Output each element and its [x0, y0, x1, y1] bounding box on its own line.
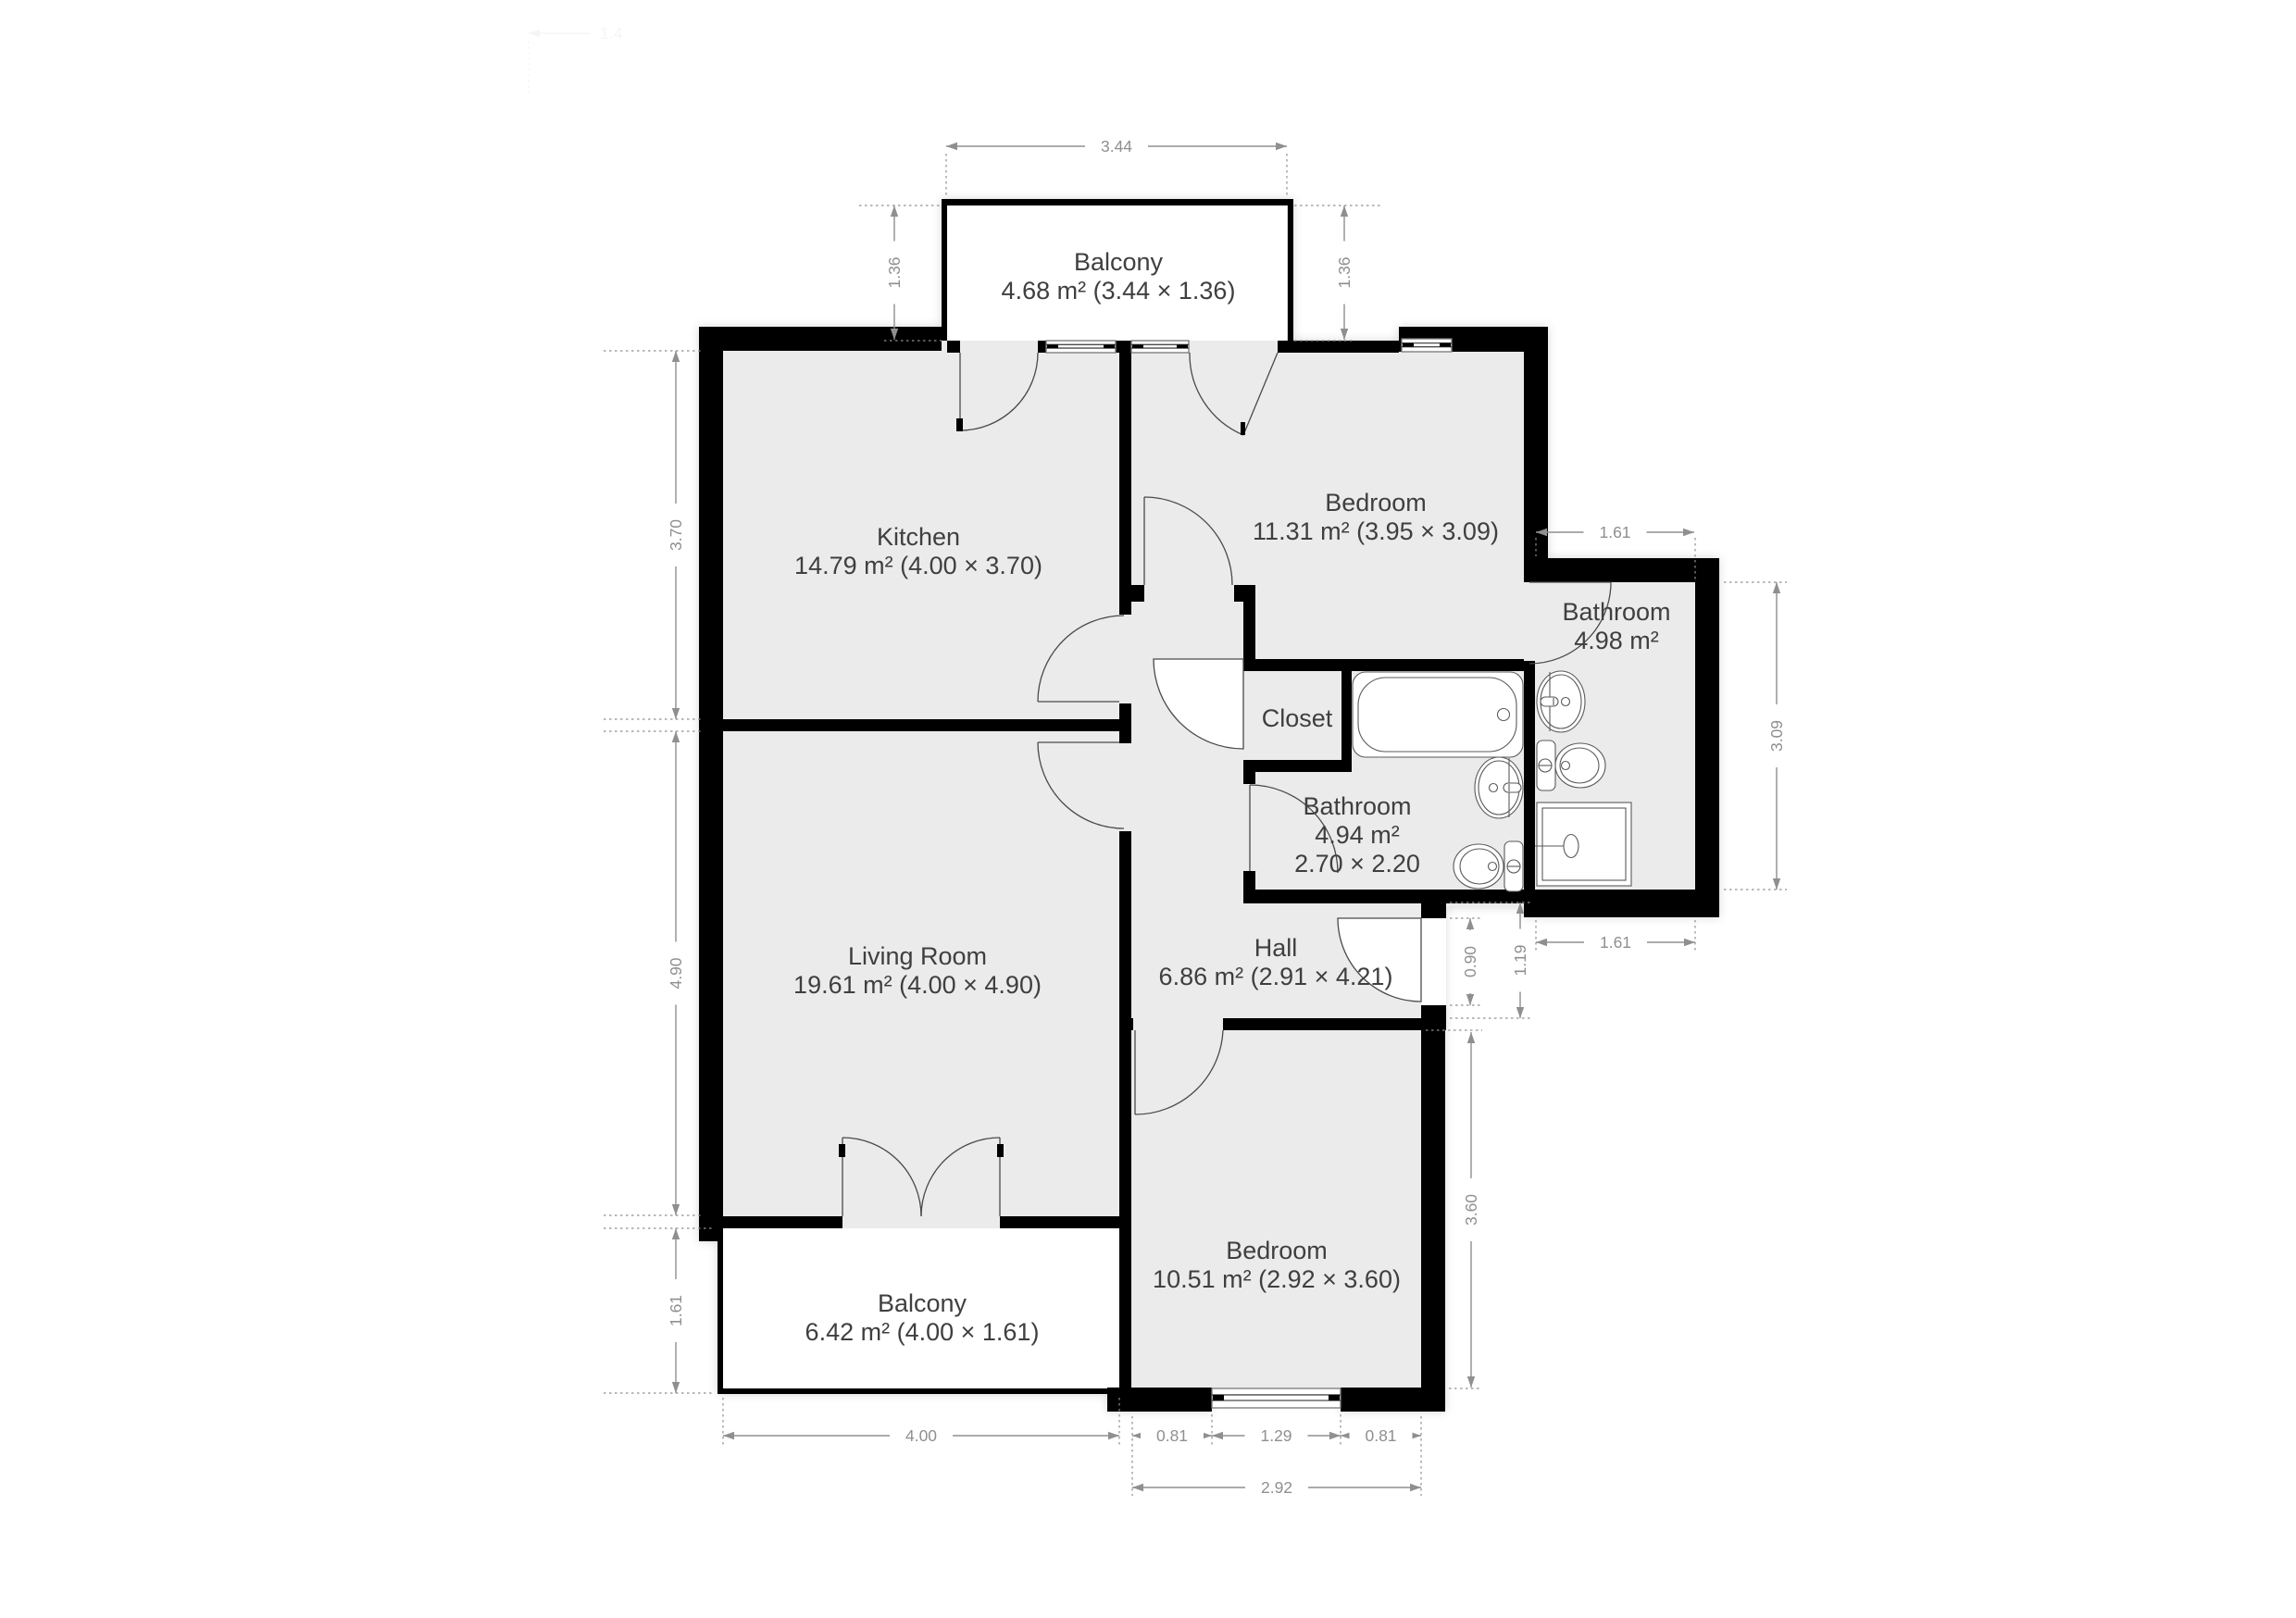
- svg-text:Bathroom: Bathroom: [1303, 792, 1411, 820]
- svg-text:1.61: 1.61: [1600, 933, 1631, 952]
- svg-text:2.70 × 2.20: 2.70 × 2.20: [1294, 850, 1420, 877]
- svg-text:3.70: 3.70: [667, 519, 685, 551]
- svg-text:11.31 m² (3.95 × 3.09): 11.31 m² (3.95 × 3.09): [1253, 517, 1499, 545]
- svg-text:3.09: 3.09: [1767, 720, 1786, 752]
- svg-text:Balcony: Balcony: [878, 1289, 967, 1317]
- svg-text:3.60: 3.60: [1462, 1194, 1480, 1226]
- svg-text:19.61 m² (4.00 × 4.90): 19.61 m² (4.00 × 4.90): [793, 971, 1042, 999]
- svg-text:3.44: 3.44: [1101, 137, 1132, 156]
- svg-text:1.61: 1.61: [1599, 523, 1630, 541]
- svg-text:1.4: 1.4: [600, 24, 623, 43]
- svg-text:6.42 m² (4.00 × 1.61): 6.42 m² (4.00 × 1.61): [805, 1318, 1040, 1346]
- svg-text:Closet: Closet: [1262, 704, 1333, 732]
- svg-text:1.36: 1.36: [885, 256, 904, 288]
- svg-text:4.90: 4.90: [667, 957, 685, 989]
- svg-text:1.36: 1.36: [1335, 256, 1354, 288]
- svg-text:14.79 m² (4.00 × 3.70): 14.79 m² (4.00 × 3.70): [794, 552, 1042, 579]
- svg-text:Living Room: Living Room: [848, 942, 987, 970]
- svg-text:0.81: 0.81: [1365, 1426, 1396, 1445]
- svg-text:1.19: 1.19: [1511, 944, 1529, 976]
- svg-text:4.98 m²: 4.98 m²: [1574, 627, 1659, 654]
- svg-text:4.94 m²: 4.94 m²: [1315, 821, 1400, 849]
- svg-text:1.61: 1.61: [667, 1295, 685, 1326]
- svg-text:0.81: 0.81: [1156, 1426, 1188, 1445]
- svg-text:Balcony: Balcony: [1074, 248, 1164, 276]
- svg-text:0.90: 0.90: [1461, 946, 1479, 977]
- svg-text:6.86 m² (2.91 × 4.21): 6.86 m² (2.91 × 4.21): [1159, 963, 1393, 990]
- svg-text:1.29: 1.29: [1260, 1426, 1291, 1445]
- svg-text:Kitchen: Kitchen: [877, 523, 960, 551]
- svg-text:Bathroom: Bathroom: [1562, 598, 1670, 626]
- svg-text:4.00: 4.00: [905, 1426, 937, 1445]
- svg-text:4.68 m² (3.44 × 1.36): 4.68 m² (3.44 × 1.36): [1002, 277, 1236, 305]
- svg-text:Bedroom: Bedroom: [1325, 489, 1427, 517]
- svg-text:2.92: 2.92: [1261, 1478, 1292, 1497]
- svg-text:Bedroom: Bedroom: [1226, 1237, 1328, 1264]
- svg-text:10.51 m² (2.92 × 3.60): 10.51 m² (2.92 × 3.60): [1153, 1265, 1401, 1293]
- svg-text:Hall: Hall: [1254, 934, 1298, 962]
